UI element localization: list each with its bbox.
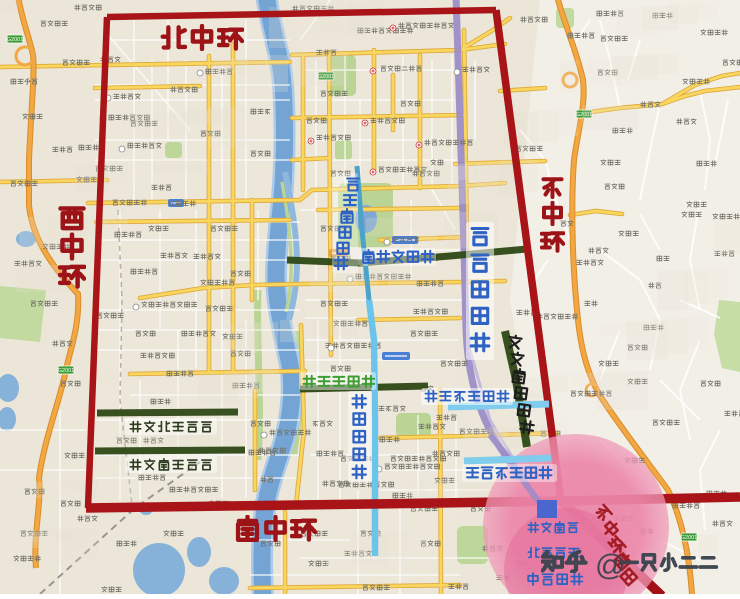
svg-text:G2001: G2001: [7, 37, 24, 43]
svg-text:@: @: [595, 549, 625, 582]
svg-text:G2001: G2001: [58, 368, 75, 374]
svg-text:G2001: G2001: [681, 535, 698, 541]
